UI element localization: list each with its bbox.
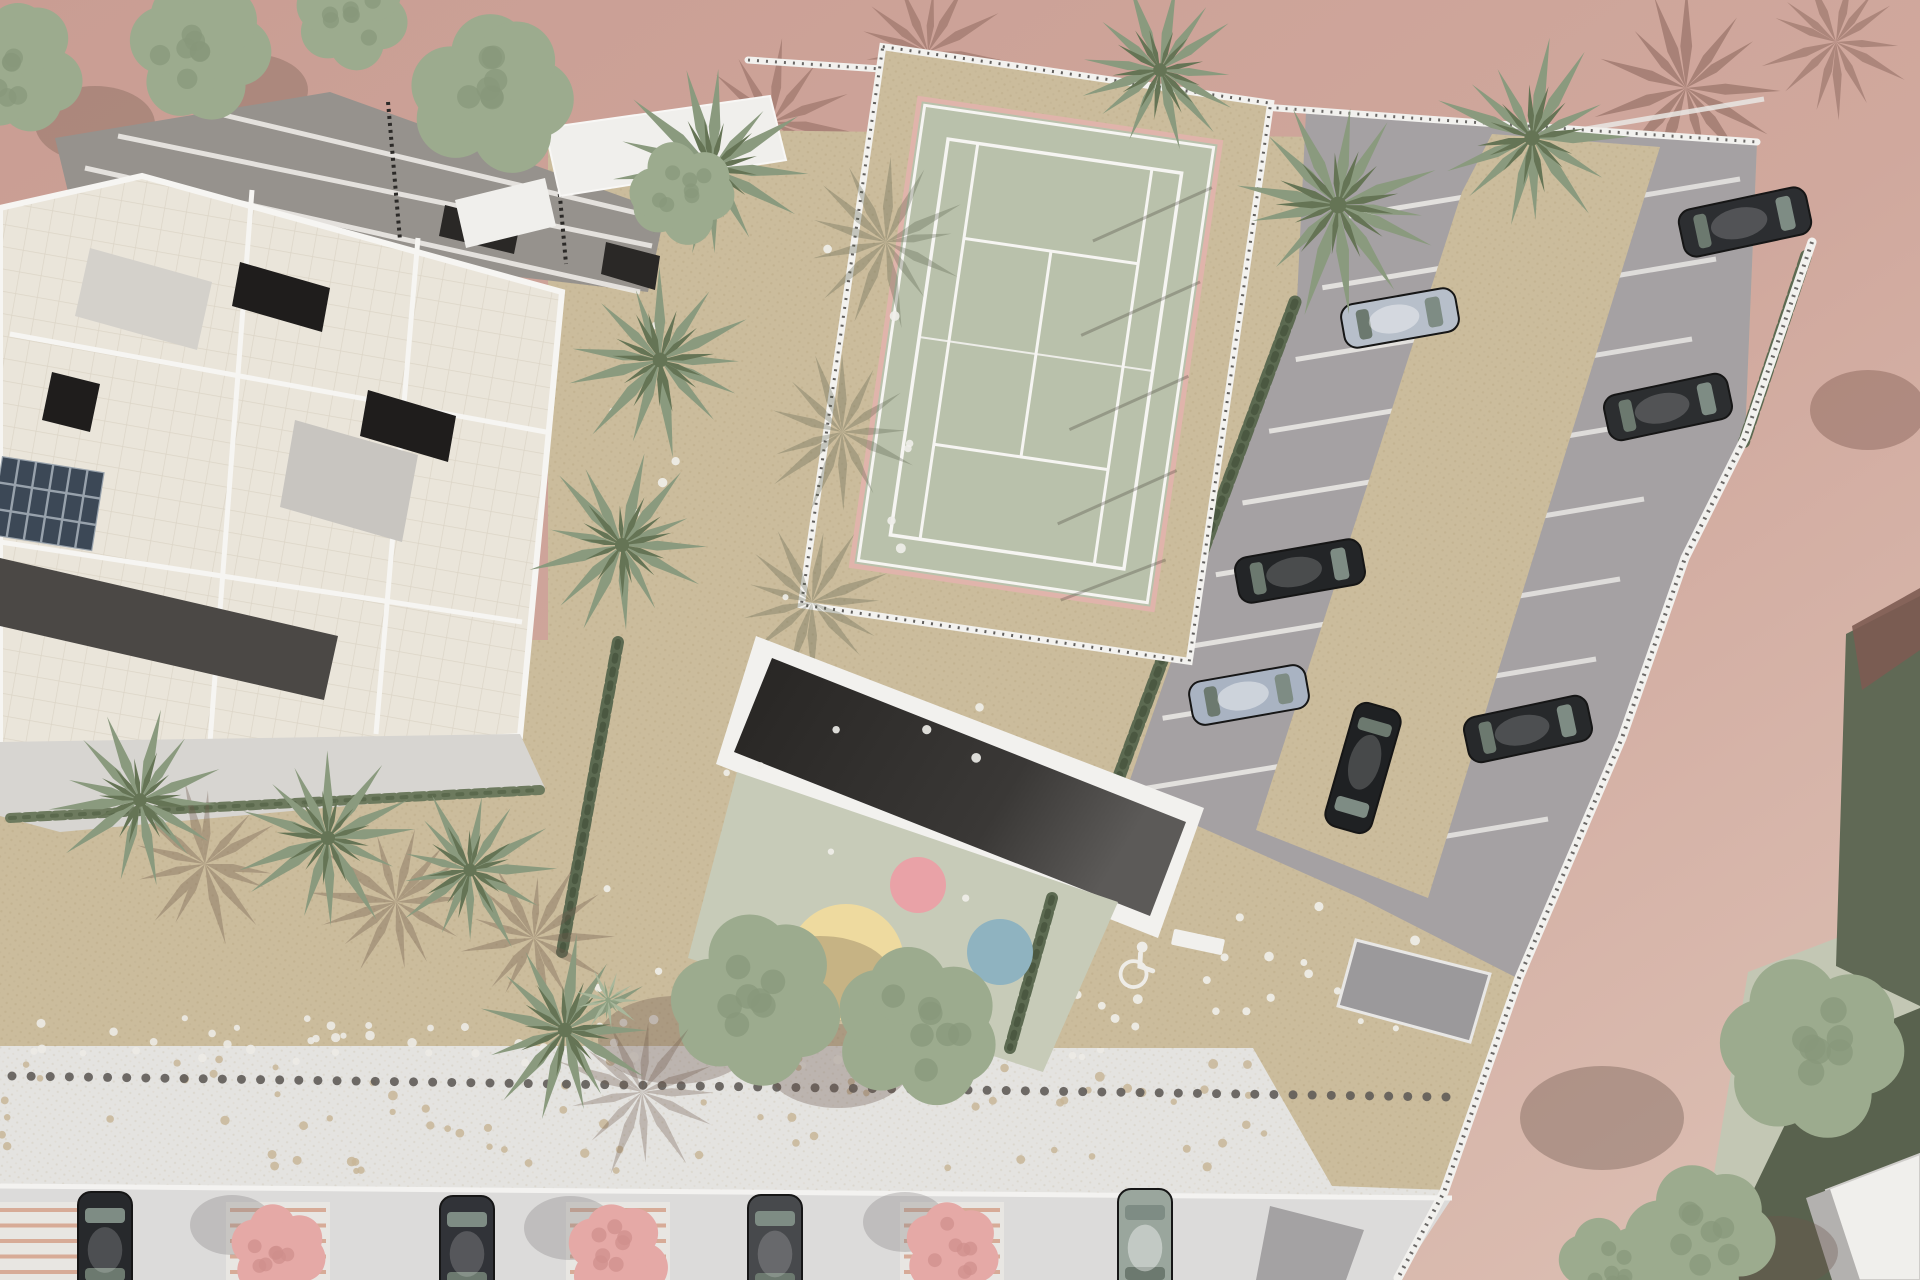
plaza-tan-dots-dot bbox=[272, 1064, 278, 1070]
paver-transition-dots-dot bbox=[340, 1033, 346, 1039]
plaza-tan-dots-dot bbox=[293, 1156, 302, 1165]
plaza-tan-dots-dot bbox=[525, 1159, 533, 1167]
neighbor-tree-speckle bbox=[1792, 1026, 1818, 1052]
pink-flowering-tree-speckle bbox=[252, 1259, 266, 1273]
parked-car-street-shine bbox=[1128, 1225, 1163, 1272]
palm-tree-crown bbox=[463, 863, 476, 876]
plaza-dark-dot-row-dot bbox=[1442, 1093, 1451, 1102]
pink-flowering-tree-speckle bbox=[940, 1217, 954, 1231]
plaza-tan-dots-dot bbox=[757, 1114, 763, 1120]
scene-layers bbox=[0, 0, 1920, 1280]
plaza-tree-speckle bbox=[882, 984, 905, 1007]
paver-dots-dot bbox=[1242, 1007, 1250, 1015]
garden-paver-dots-dot bbox=[828, 849, 834, 855]
solar-panel-array bbox=[0, 456, 105, 551]
parked-car-street-windshield bbox=[1125, 1205, 1165, 1220]
plaza-dark-dot-row-dot bbox=[486, 1079, 495, 1088]
plaza-dark-dot-row-dot bbox=[1078, 1087, 1087, 1096]
garden-paver-dots-dot bbox=[906, 440, 913, 447]
paver-transition-dots-dot bbox=[1079, 1054, 1086, 1061]
plaza-dark-dot-row-dot bbox=[1193, 1089, 1202, 1098]
plaza-tree-speckle bbox=[914, 1058, 937, 1081]
plaza-tan-dots-dot bbox=[268, 1150, 277, 1159]
plaza-dark-dot-row-dot bbox=[199, 1074, 208, 1083]
plaza-tan-dots-dot bbox=[1218, 1139, 1227, 1148]
neighbor-tree-speckle bbox=[1682, 1204, 1704, 1226]
garden-paver-dots-dot bbox=[975, 703, 984, 712]
street-tree-speckle bbox=[9, 86, 28, 105]
plaza-dark-dot-row-dot bbox=[256, 1075, 265, 1084]
plaza-dark-dot-row-dot bbox=[1250, 1090, 1259, 1099]
plaza-tree-speckle bbox=[726, 955, 751, 980]
plaza-tan-dots-dot bbox=[700, 1099, 706, 1105]
site-plan-rendering bbox=[0, 0, 1920, 1280]
plaza-dark-dot-row-dot bbox=[409, 1077, 418, 1086]
street-tree-speckle bbox=[177, 69, 197, 89]
agave-plant-crown bbox=[605, 997, 610, 1002]
garden-paver-dots-dot bbox=[971, 753, 981, 763]
play-circle-pink bbox=[890, 857, 946, 913]
pink-flowering-tree-speckle bbox=[928, 1253, 942, 1267]
plaza-tan-dots-dot bbox=[810, 1132, 819, 1141]
garden-paver-dots-dot bbox=[757, 762, 764, 769]
plaza-dark-dot-row-dot bbox=[371, 1077, 380, 1086]
plaza-tan-dots-dot bbox=[792, 1139, 800, 1147]
parked-car-street-windshield bbox=[85, 1208, 125, 1223]
plaza-dark-dot-row-dot bbox=[1327, 1091, 1336, 1100]
neighbor-tree-speckle bbox=[1701, 1221, 1723, 1243]
garden-tree-speckle bbox=[665, 165, 680, 180]
plaza-tan-dots-dot bbox=[220, 1116, 229, 1125]
plaza-tan-dots-dot bbox=[270, 1162, 279, 1171]
plaza-dark-dot-row-dot bbox=[84, 1073, 93, 1082]
garden-tree-speckle bbox=[652, 193, 667, 208]
parked-car-street bbox=[440, 1196, 494, 1280]
plaza-tan-dots-dot bbox=[1060, 1096, 1068, 1104]
paver-dots-dot bbox=[1314, 902, 1323, 911]
plaza-tan-dots-dot bbox=[106, 1115, 114, 1123]
plaza-tree-speckle bbox=[910, 1023, 933, 1046]
plaza-dark-dot-row-dot bbox=[180, 1074, 189, 1083]
garden-paver-dots-dot bbox=[887, 516, 895, 524]
plaza-dark-dot-row-dot bbox=[1174, 1089, 1183, 1098]
plaza-dark-dot-row-dot bbox=[1059, 1087, 1068, 1096]
plaza-tan-dots-dot bbox=[455, 1129, 464, 1138]
paver-transition-dots-dot bbox=[182, 1015, 188, 1021]
paver-transition-dots-dot bbox=[1069, 1052, 1076, 1059]
garden-paver-dots-dot bbox=[604, 885, 611, 892]
paver-dots-dot bbox=[1358, 1018, 1364, 1024]
pink-flowering-tree-speckle bbox=[609, 1257, 624, 1272]
parked-car-street-shine bbox=[758, 1231, 793, 1278]
plaza-tan-dots-dot bbox=[501, 1146, 508, 1153]
paver-dots-dot bbox=[1212, 1007, 1220, 1015]
paver-transition-dots-dot bbox=[327, 1021, 336, 1030]
plaza-tan-dots-dot bbox=[1261, 1130, 1267, 1136]
plaza-tan-dots-dot bbox=[1089, 1153, 1096, 1160]
paver-transition-dots-dot bbox=[425, 1049, 432, 1056]
pink-flowering-tree-speckle bbox=[268, 1246, 282, 1260]
plaza-tan-dots-dot bbox=[1203, 1162, 1212, 1171]
plaza-tan-dots-dot bbox=[37, 1075, 44, 1082]
paver-dots-dot bbox=[1221, 953, 1229, 961]
padel-court bbox=[801, 47, 1270, 662]
paver-dots-dot bbox=[1236, 913, 1244, 921]
plaza-tan-dots-dot bbox=[174, 1059, 181, 1066]
paver-dots-dot bbox=[1111, 1014, 1120, 1023]
paver-dots-dot bbox=[1267, 994, 1275, 1002]
palm-tree-crown bbox=[615, 538, 629, 552]
pink-flowering-tree-speckle bbox=[963, 1242, 977, 1256]
plaza-dark-dot-row-dot bbox=[562, 1080, 571, 1089]
garden-tree-speckle bbox=[682, 172, 697, 187]
palm-tree-crown bbox=[321, 831, 335, 845]
plaza-tan-dots-dot bbox=[484, 1124, 492, 1132]
plaza-dark-dot-row-dot bbox=[1040, 1087, 1049, 1096]
plaza-tan-dots-dot bbox=[1095, 1072, 1105, 1082]
garden-paver-dots-dot bbox=[922, 725, 931, 734]
paver-dots-dot bbox=[1300, 959, 1307, 966]
paver-transition-dots-dot bbox=[471, 1049, 479, 1057]
site-plan-viewport bbox=[0, 0, 1920, 1280]
plaza-tan-dots-dot bbox=[559, 1106, 567, 1114]
plaza-dark-dot-row-dot bbox=[696, 1082, 705, 1091]
paver-transition-dots-dot bbox=[304, 1015, 311, 1022]
neighbor-tree-speckle bbox=[1827, 1025, 1853, 1051]
plaza-dark-dot-row-dot bbox=[524, 1079, 533, 1088]
paver-transition-dots-dot bbox=[208, 1030, 216, 1038]
plaza-tan-dots-dot bbox=[327, 1115, 333, 1121]
plaza-dark-dot-row-dot bbox=[141, 1073, 150, 1082]
plaza-tan-dots-dot bbox=[695, 1151, 703, 1159]
garden-paver-dots-dot bbox=[896, 543, 906, 553]
garden-paver-dots-dot bbox=[658, 478, 667, 487]
garden-tree-speckle bbox=[684, 188, 699, 203]
palm-tree-crown bbox=[1524, 130, 1539, 145]
plaza-dark-dot-row-dot bbox=[1097, 1087, 1106, 1096]
plaza-dark-dot-row-dot bbox=[466, 1078, 475, 1087]
pink-flowering-tree-speckle bbox=[958, 1265, 972, 1279]
plaza-dark-dot-row-dot bbox=[1136, 1088, 1145, 1097]
neighbor-tree-speckle bbox=[1601, 1241, 1616, 1256]
paver-transition-dots-dot bbox=[234, 1025, 240, 1031]
plaza-dark-dot-row-dot bbox=[1021, 1086, 1030, 1095]
paver-transition-dots-dot bbox=[293, 1058, 300, 1065]
paver-transition-dots-dot bbox=[246, 1045, 255, 1054]
neighbor-tree-speckle bbox=[1617, 1250, 1632, 1265]
plaza-dark-dot-row-dot bbox=[237, 1075, 246, 1084]
paver-transition-dots-dot bbox=[150, 1038, 158, 1046]
street-tree-speckle bbox=[479, 46, 502, 69]
paver-transition-dots-dot bbox=[30, 1048, 37, 1055]
street-tree-speckle bbox=[322, 7, 338, 23]
plaza-dark-dot-row-dot bbox=[1289, 1090, 1298, 1099]
plaza-dark-dot-row-dot bbox=[1365, 1091, 1374, 1100]
paver-transition-dots-dot bbox=[198, 1054, 207, 1063]
plaza-tan-dots-dot bbox=[989, 1097, 997, 1105]
plaza-tan-dots-dot bbox=[1208, 1059, 1218, 1069]
plaza-tan-dots-dot bbox=[444, 1125, 451, 1132]
plaza-dark-dot-row-dot bbox=[715, 1082, 724, 1091]
plaza-tan-dots-dot bbox=[1243, 1060, 1252, 1069]
plaza-dark-dot-row-dot bbox=[1231, 1089, 1240, 1098]
paver-transition-dots-dot bbox=[427, 1025, 434, 1032]
plaza-dark-dot-row-dot bbox=[390, 1077, 399, 1086]
plaza-dark-dot-row-dot bbox=[1346, 1091, 1355, 1100]
palm-tree-crown bbox=[558, 1023, 572, 1037]
plaza-tan-dots-dot bbox=[580, 1149, 589, 1158]
plaza-dark-dot-row-dot bbox=[27, 1072, 36, 1081]
plaza-tan-dots-dot bbox=[275, 1091, 281, 1097]
plaza-dark-dot-row-dot bbox=[103, 1073, 112, 1082]
paver-transition-dots-dot bbox=[461, 1023, 469, 1031]
palm-tree-crown bbox=[1153, 63, 1167, 77]
paver-transition-dots-dot bbox=[332, 1048, 339, 1055]
plaza-tan-dots-dot bbox=[613, 1167, 620, 1174]
garden-paver-dots-dot bbox=[962, 894, 969, 901]
plaza-dark-dot-row-dot bbox=[1269, 1090, 1278, 1099]
street-tree-speckle bbox=[344, 7, 360, 23]
plaza-tan-dots-dot bbox=[357, 1167, 364, 1174]
palm-tree-crown bbox=[653, 353, 668, 368]
plaza-dark-dot-row-dot bbox=[581, 1080, 590, 1089]
plaza-tree-speckle bbox=[751, 993, 776, 1018]
paver-dots-dot bbox=[1393, 1025, 1399, 1031]
plaza-tan-dots-dot bbox=[1183, 1145, 1191, 1153]
plaza-tan-dots-dot bbox=[422, 1105, 430, 1113]
parked-car-street-windshield bbox=[447, 1212, 487, 1227]
plaza-dark-dot-row-dot bbox=[218, 1075, 227, 1084]
plaza-tan-dots-dot bbox=[390, 1109, 396, 1115]
neighbor-tree-speckle bbox=[1820, 997, 1846, 1023]
plaza-dark-dot-row-dot bbox=[122, 1073, 131, 1082]
plaza-dark-dot-row-dot bbox=[294, 1076, 303, 1085]
plaza-dark-dot-row-dot bbox=[983, 1086, 992, 1095]
parked-car-street-shine bbox=[450, 1231, 485, 1277]
palm-tree-crown bbox=[1330, 197, 1347, 214]
plaza-dark-dot-row-dot bbox=[1155, 1088, 1164, 1097]
plaza-tan-dots-dot bbox=[1000, 1064, 1009, 1073]
parked-car-street-shine bbox=[88, 1227, 123, 1273]
street-tree-speckle bbox=[150, 45, 170, 65]
plaza-dark-dot-row-dot bbox=[333, 1076, 342, 1085]
plaza-dark-dot-row-dot bbox=[160, 1074, 169, 1083]
paver-transition-dots-dot bbox=[37, 1019, 46, 1028]
paver-transition-dots-dot bbox=[521, 1059, 529, 1067]
plaza-dark-dot-row-dot bbox=[1403, 1092, 1412, 1101]
plaza-tan-dots-dot bbox=[1, 1097, 9, 1105]
plaza-tan-dots-dot bbox=[1051, 1147, 1058, 1154]
plaza-dark-dot-row-dot bbox=[428, 1078, 437, 1087]
neighbor-tree-speckle bbox=[1689, 1254, 1711, 1276]
paver-transition-dots-dot bbox=[407, 1038, 416, 1047]
paver-transition-dots-dot bbox=[37, 1044, 46, 1053]
plaza-tree-speckle bbox=[918, 997, 941, 1020]
pink-flowering-tree-speckle bbox=[248, 1239, 262, 1253]
paver-dots-dot bbox=[1133, 994, 1143, 1004]
parked-car-street bbox=[1118, 1189, 1172, 1280]
plaza-dark-dot-row-dot bbox=[352, 1077, 361, 1086]
neighbor-tree-speckle bbox=[1670, 1234, 1692, 1256]
plaza-dark-dot-row-dot bbox=[734, 1082, 743, 1091]
palm-tree-crown bbox=[133, 793, 147, 807]
plaza-dark-dot-row-dot bbox=[1002, 1086, 1011, 1095]
plaza-tan-dots-dot bbox=[787, 1113, 796, 1122]
paver-transition-dots-dot bbox=[365, 1031, 375, 1041]
plaza-tan-dots-dot bbox=[23, 1061, 29, 1067]
plaza-tan-dots-dot bbox=[1016, 1155, 1025, 1164]
street-tree-speckle bbox=[361, 29, 377, 45]
plaza-tan-dots-dot bbox=[1171, 1099, 1177, 1105]
plaza-dark-dot-row-dot bbox=[505, 1079, 514, 1088]
paver-transition-dots-dot bbox=[365, 1022, 372, 1029]
plaza-dark-dot-row-dot bbox=[1308, 1091, 1317, 1100]
street-tree-speckle bbox=[476, 77, 499, 100]
plaza-dark-dot-row-dot bbox=[447, 1078, 456, 1087]
plaza-tan-dots-dot bbox=[4, 1114, 11, 1121]
plaza-tan-dots-dot bbox=[426, 1121, 434, 1129]
neighbor-tree-speckle bbox=[1718, 1244, 1740, 1266]
garden-paver-dots-dot bbox=[890, 311, 900, 321]
plaza-tan-dots-dot bbox=[352, 1158, 360, 1166]
plaza-tan-dots-dot bbox=[972, 1103, 980, 1111]
paver-dots-dot bbox=[1131, 1022, 1139, 1030]
pink-flowering-tree-speckle bbox=[607, 1219, 622, 1234]
plaza-dark-dot-row-dot bbox=[275, 1075, 284, 1084]
garden-tree-speckle bbox=[696, 168, 711, 183]
plaza-tan-dots-dot bbox=[215, 1056, 223, 1064]
pink-flowering-tree-speckle bbox=[615, 1235, 630, 1250]
pink-flowering-tree-speckle bbox=[593, 1255, 608, 1270]
plaza-dark-dot-row-dot bbox=[1384, 1092, 1393, 1101]
paver-transition-dots-dot bbox=[80, 1050, 87, 1057]
pink-flowering-tree-speckle bbox=[592, 1227, 607, 1242]
garden-paver-dots-dot bbox=[782, 594, 788, 600]
pink-flowering-tree-speckle bbox=[949, 1238, 963, 1252]
plaza-tan-dots-dot bbox=[944, 1164, 951, 1171]
plaza-dark-dot-row-dot bbox=[1212, 1089, 1221, 1098]
paver-transition-dots-dot bbox=[331, 1033, 340, 1042]
plaza-dark-dot-row-dot bbox=[1116, 1088, 1125, 1097]
plaza-dark-dot-row-dot bbox=[313, 1076, 322, 1085]
plaza-tan-dots-dot bbox=[299, 1121, 308, 1130]
garden-paver-dots-dot bbox=[671, 457, 679, 465]
paver-dots-dot bbox=[1264, 952, 1274, 962]
plaza-tan-dots-dot bbox=[210, 1070, 218, 1078]
paver-transition-dots-dot bbox=[109, 1028, 117, 1036]
paver-dots-dot bbox=[1098, 1002, 1106, 1010]
garden-paver-dots-dot bbox=[655, 968, 662, 975]
neighbor-tree-speckle bbox=[1798, 1059, 1824, 1085]
plaza-dark-dot-row-dot bbox=[65, 1072, 74, 1081]
paver-dots-dot bbox=[1304, 969, 1313, 978]
paver-transition-dots-dot bbox=[223, 1040, 231, 1048]
paver-transition-dots-dot bbox=[132, 1047, 140, 1055]
plaza-dark-dot-row-dot bbox=[1422, 1092, 1431, 1101]
plaza-dark-dot-row-dot bbox=[8, 1072, 17, 1081]
paver-transition-dots-dot bbox=[312, 1035, 320, 1043]
garden-paver-dots-dot bbox=[823, 245, 832, 254]
parked-car-street-windshield bbox=[755, 1211, 795, 1226]
paver-dots-dot bbox=[1410, 936, 1420, 946]
garden-paver-dots-dot bbox=[832, 726, 839, 733]
plaza-tree-speckle bbox=[948, 1023, 971, 1046]
plaza-dark-dot-row-dot bbox=[46, 1072, 55, 1081]
tree-shadow bbox=[1520, 1066, 1684, 1170]
plaza-tan-dots-dot bbox=[3, 1142, 11, 1150]
street-tree-speckle bbox=[4, 49, 23, 68]
parked-car-street bbox=[748, 1195, 802, 1280]
street-tree-speckle bbox=[176, 38, 196, 58]
plaza-tan-dots-dot bbox=[486, 1144, 492, 1150]
plaza-tan-dots-dot bbox=[388, 1091, 398, 1101]
plaza-tree-speckle bbox=[725, 1012, 750, 1037]
paver-dots-dot bbox=[1203, 976, 1211, 984]
parked-car-street bbox=[78, 1192, 132, 1280]
garden-paver-dots-dot bbox=[723, 770, 730, 777]
plaza-tan-dots-dot bbox=[1242, 1120, 1251, 1129]
